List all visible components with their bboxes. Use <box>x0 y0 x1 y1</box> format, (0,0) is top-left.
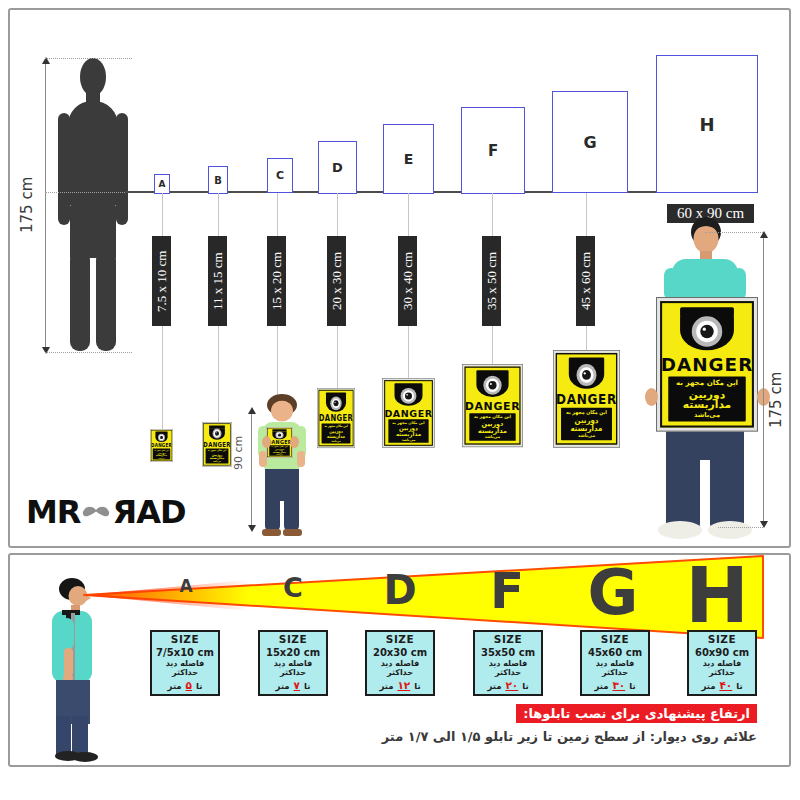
cctv-camera-icon <box>268 428 292 440</box>
sign-frame: DANGER این مکان مجهز به دوربین مداربسته … <box>382 378 435 448</box>
size-label-f: 35 x 50 cm <box>482 236 501 326</box>
sign-line3: می‌باشد <box>485 435 501 439</box>
viewer-profile-figure <box>40 576 110 762</box>
cctv-camera-icon <box>204 424 230 442</box>
sign-line3: می‌باشد <box>578 433 595 438</box>
danger-text: DANGER <box>151 444 172 449</box>
distance-box-title: SIZE <box>386 634 414 646</box>
size-label-text: 20 x 30 cm <box>329 252 345 310</box>
sign-line3: می‌باشد <box>159 457 165 459</box>
danger-text: DANGER <box>556 393 617 406</box>
sign-face: DANGER این مکان مجهز به دوربین مداربسته … <box>556 353 618 445</box>
logo-left-text: MR <box>26 496 80 528</box>
cone-letter-a: A <box>169 578 203 595</box>
size-label-text: 35 x 50 cm <box>484 252 500 310</box>
man-left-hand <box>645 388 658 406</box>
distance-box-caption: فاصله دید حداکثر <box>367 659 433 678</box>
size-rectangle-h: H <box>656 55 758 193</box>
sign-frame: DANGER این مکان مجهز به دوربین مداربسته … <box>317 388 355 448</box>
distance-prefix: تا <box>414 681 420 691</box>
distance-value: ۱۲ <box>396 679 411 691</box>
distance-box-caption: فاصله دید حداکثر <box>260 659 326 678</box>
sign-frame: DANGER این مکان مجهز به دوربین مداربسته … <box>656 297 758 432</box>
man-feet-dotted-line <box>718 527 763 528</box>
danger-sign-h: DANGER این مکان مجهز به دوربین مداربسته … <box>656 297 758 432</box>
sign-face: DANGER این مکان مجهز به دوربین مداربسته … <box>384 380 433 446</box>
distance-suffix: متر <box>701 681 715 691</box>
sign-frame: DANGER این مکان مجهز به دوربین مداربسته … <box>462 364 523 447</box>
sign-line2: دوربین مداربسته <box>388 426 428 437</box>
adult-height-label: 175 cm <box>18 150 36 260</box>
distance-box-size: 7/5x10 cm <box>156 647 214 658</box>
danger-sign-e: DANGER این مکان مجهز به دوربین مداربسته … <box>382 378 435 448</box>
distance-box-caption: فاصله دید حداکثر <box>475 659 541 678</box>
size-rectangle-letter: A <box>159 179 166 189</box>
size-label-a: 7.5 x 10 cm <box>152 236 171 326</box>
size-label-b: 11 x 15 cm <box>208 236 227 326</box>
danger-sign-f: DANGER این مکان مجهز به دوربین مداربسته … <box>462 364 523 447</box>
distance-box-1: SIZE7/5x10 cmفاصله دید حداکثرتا ۵ متر <box>150 630 220 696</box>
child-left-hand <box>262 436 271 448</box>
distance-box-value-line: تا ۷ متر <box>276 679 311 692</box>
sign-line1: این مکان مجهز به <box>474 415 511 419</box>
install-height-note-title: ارتفاع پیشنهادی برای نصب تابلوها: <box>516 704 757 723</box>
danger-text: DANGER <box>661 356 754 374</box>
sign-line3: می‌باشد <box>276 453 283 455</box>
size-label-d: 20 x 30 cm <box>327 236 346 326</box>
sign-persian-band: این مکان مجهز به دوربین مداربسته می‌باشد <box>469 413 515 441</box>
distance-value: ۲۰ <box>504 679 519 691</box>
man-head-dotted-line <box>705 232 763 233</box>
distance-box-title: SIZE <box>171 634 199 646</box>
child-measure-arrow-bottom <box>248 525 256 532</box>
cctv-camera-icon <box>557 354 616 392</box>
size-rectangle-a: A <box>154 174 170 194</box>
sign-line3: می‌باشد <box>694 412 720 419</box>
danger-text: DANGER <box>319 414 354 422</box>
distance-box-size: 20x30 cm <box>373 647 427 658</box>
distance-box-2: SIZE15x20 cmفاصله دید حداکثرتا ۷ متر <box>258 630 328 696</box>
sign-line2: دوربین مداربسته <box>668 389 745 410</box>
distance-box-value-line: تا ۴۰ متر <box>701 679 742 692</box>
distance-prefix: تا <box>522 681 528 691</box>
danger-text: DANGER <box>203 442 230 448</box>
sign-frame: DANGER این مکان مجهز به دوربین مداربسته … <box>150 429 173 462</box>
right-measure-arrow-top <box>760 231 768 238</box>
sign-face: DANGER این مکان مجهز به دوربین مداربسته … <box>151 430 172 461</box>
distance-box-size: 15x20 cm <box>266 647 320 658</box>
sign-persian-band: این مکان مجهز به دوربین مداربسته می‌باشد <box>322 423 351 443</box>
install-height-note-body: علائم روی دیوار: از سطح زمین تا زیر تابل… <box>382 729 757 744</box>
distance-suffix: متر <box>487 681 501 691</box>
sign-persian-band: این مکان مجهز به دوربین مداربسته می‌باشد <box>668 377 745 422</box>
sign-face: DANGER این مکان مجهز به دوربین مداربسته … <box>464 367 520 445</box>
sign-line1: این مکان مجهز به <box>566 410 607 415</box>
cone-letter-h: H <box>641 558 793 634</box>
distance-box-caption: فاصله دید حداکثر <box>582 659 648 678</box>
cctv-camera-icon <box>466 368 520 401</box>
distance-value: ۴۰ <box>718 679 733 691</box>
child-measure-line <box>251 410 252 530</box>
distance-box-title: SIZE <box>601 634 629 646</box>
child-right-hand <box>290 436 299 448</box>
cone-letter-c: C <box>266 574 320 601</box>
size-rectangle-d: D <box>318 141 357 194</box>
distance-box-title: SIZE <box>279 634 307 646</box>
sign-line2: دوربین مداربسته <box>469 421 515 434</box>
size-label-text: 15 x 20 cm <box>269 252 285 310</box>
distance-suffix: متر <box>168 681 182 691</box>
sign-line3: می‌باشد <box>213 460 221 462</box>
distance-box-value-line: تا ۲۰ متر <box>487 679 528 692</box>
size-rectangle-b: B <box>208 166 228 194</box>
sign-line2: دوربین مداربسته <box>153 451 170 456</box>
distance-prefix: تا <box>736 681 742 691</box>
sign-persian-band: این مکان مجهز به دوربین مداربسته می‌باشد <box>206 449 229 464</box>
head-dotted-line <box>45 58 132 59</box>
distance-box-caption: فاصله دید حداکثر <box>152 659 218 678</box>
distance-value: ۷ <box>293 679 301 691</box>
size-rectangle-c: C <box>267 158 293 193</box>
sign-persian-band: این مکان مجهز به دوربین مداربسته می‌باشد <box>388 419 428 442</box>
right-measure-line <box>763 234 764 526</box>
feet-dotted-line <box>45 352 132 353</box>
cctv-camera-icon <box>319 391 352 415</box>
size-label-e: 30 x 40 cm <box>398 236 417 326</box>
distance-box-title: SIZE <box>708 634 736 646</box>
distance-suffix: متر <box>379 681 393 691</box>
child-height-label: 90 cm <box>232 425 245 481</box>
cctv-camera-icon <box>662 303 752 356</box>
distance-box-value-line: تا ۱۲ متر <box>379 679 420 692</box>
distance-value: ۵ <box>185 679 193 691</box>
distance-box-6: SIZE60x90 cmفاصله دید حداکثرتا ۴۰ متر <box>687 630 757 696</box>
distance-suffix: متر <box>276 681 290 691</box>
size-rectangle-letter: D <box>332 160 343 175</box>
sign-line1: این مکان مجهز به <box>676 379 738 386</box>
sign-size-infographic: 175 cm ABCDEFGH 7.5 x 10 cm11 x 15 cm15 … <box>0 0 800 800</box>
distance-prefix: تا <box>304 681 310 691</box>
danger-sign-d: DANGER این مکان مجهز به دوربین مداربسته … <box>317 388 355 448</box>
size-rectangle-e: E <box>383 124 434 194</box>
baseline-dotted-extension <box>45 192 127 193</box>
danger-sign-a: DANGER این مکان مجهز به دوربین مداربسته … <box>150 429 173 462</box>
distance-box-5: SIZE45x60 cmفاصله دید حداکثرتا ۳۰ متر <box>580 630 650 696</box>
size-label-text: 7.5 x 10 cm <box>154 250 170 311</box>
size-label-text: 45 x 60 cm <box>578 252 594 310</box>
distance-box-size: 35x50 cm <box>481 647 535 658</box>
sign-face: DANGER این مکان مجهز به دوربین مداربسته … <box>660 301 754 427</box>
size-label-text: 30 x 40 cm <box>400 252 416 310</box>
distance-box-title: SIZE <box>494 634 522 646</box>
size-rectangle-letter: C <box>276 169 284 182</box>
distance-box-3: SIZE20x30 cmفاصله دید حداکثرتا ۱۲ متر <box>365 630 435 696</box>
distance-box-value-line: تا ۳۰ متر <box>594 679 635 692</box>
distance-prefix: تا <box>629 681 635 691</box>
sign-line1: این مکان مجهز به <box>392 421 424 425</box>
child-figure <box>250 393 314 541</box>
adult-silhouette <box>55 56 131 354</box>
cone-letter-d: D <box>360 570 440 610</box>
sign-line2: دوربین مداربسته <box>206 453 229 460</box>
sign-face: DANGER این مکان مجهز به دوربین مداربسته … <box>319 390 354 446</box>
sign-face: DANGER این مکان مجهز به دوربین مداربسته … <box>203 423 231 465</box>
distance-suffix: متر <box>594 681 608 691</box>
sign-persian-band: این مکان مجهز به دوربین مداربسته می‌باشد <box>153 449 170 460</box>
cctv-camera-icon <box>151 431 171 444</box>
distance-box-size: 45x60 cm <box>588 647 642 658</box>
cone-letter-f: F <box>457 566 557 616</box>
brand-logo: MR ЯAD <box>26 496 185 528</box>
sign-persian-band: این مکان مجهز به دوربین مداربسته می‌باشد <box>269 445 289 455</box>
size-rectangle-letter: F <box>488 142 498 160</box>
danger-sign-b: DANGER این مکان مجهز به دوربین مداربسته … <box>202 422 232 467</box>
sign-persian-band: این مکان مجهز به دوربین مداربسته می‌باشد <box>561 408 612 441</box>
sign-line2: دوربین مداربسته <box>561 416 612 432</box>
sign-line3: می‌باشد <box>402 438 416 441</box>
sign-frame: DANGER این مکان مجهز به دوربین مداربسته … <box>202 422 232 467</box>
sign-line2: دوربین مداربسته <box>322 429 351 439</box>
child-measure-arrow-top <box>248 407 256 414</box>
danger-text: DANGER <box>465 401 520 412</box>
man-height-label: 175 cm <box>767 345 785 455</box>
danger-text: DANGER <box>384 409 432 419</box>
cctv-camera-icon <box>385 381 432 409</box>
size-label-text: 11 x 15 cm <box>210 252 226 310</box>
sign-line1: این مکان مجهز به <box>324 425 347 428</box>
distance-box-size: 60x90 cm <box>695 647 749 658</box>
distance-box-4: SIZE35x50 cmفاصله دید حداکثرتا ۲۰ متر <box>473 630 543 696</box>
size-label-g: 45 x 60 cm <box>576 236 595 326</box>
right-measure-arrow-bottom <box>760 521 768 528</box>
distance-box-caption: فاصله دید حداکثر <box>689 659 755 678</box>
size-rectangle-letter: G <box>583 133 596 152</box>
distance-box-value-line: تا ۵ متر <box>168 679 203 692</box>
mustache-icon <box>81 505 111 519</box>
size-rectangle-letter: B <box>214 175 222 186</box>
distance-value: ۳۰ <box>611 679 626 691</box>
sign-line3: می‌باشد <box>331 439 341 442</box>
size-rectangle-g: G <box>552 91 628 193</box>
sign-frame: DANGER این مکان مجهز به دوربین مداربسته … <box>553 350 620 448</box>
size-rectangle-letter: H <box>699 114 714 135</box>
sign-line2: دوربین مداربسته <box>269 448 289 453</box>
danger-sign-g: DANGER این مکان مجهز به دوربین مداربسته … <box>553 350 620 448</box>
left-measure-line <box>45 60 46 352</box>
size-rectangle-letter: E <box>404 151 414 167</box>
logo-right-text: ЯAD <box>112 496 185 528</box>
size-label-c: 15 x 20 cm <box>267 236 286 326</box>
size-rectangle-f: F <box>461 107 525 194</box>
distance-prefix: تا <box>196 681 202 691</box>
